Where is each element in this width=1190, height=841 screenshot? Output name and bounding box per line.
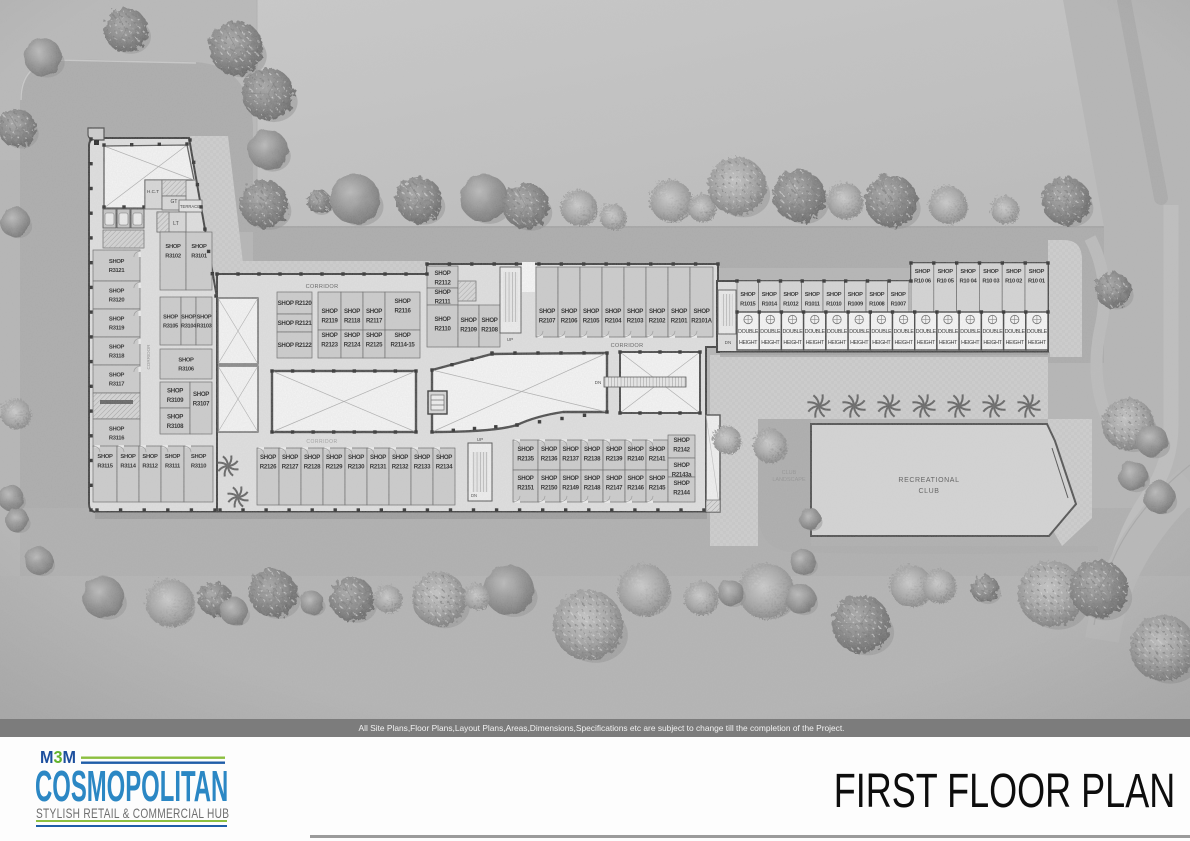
svg-text:STYLISH RETAIL & COMMERCIAL HU: STYLISH RETAIL & COMMERCIAL HUB <box>36 806 229 822</box>
svg-text:COSMOPOLITAN: COSMOPOLITAN <box>35 761 228 811</box>
